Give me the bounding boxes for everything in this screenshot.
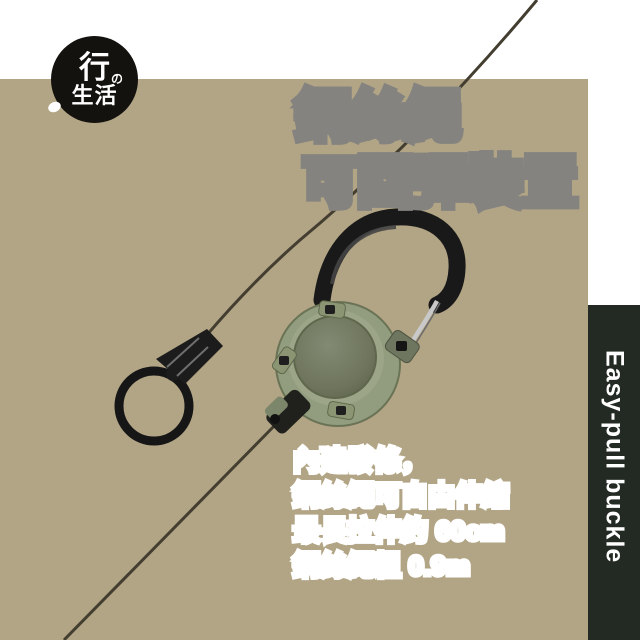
headline-line1: 鋼絲繩	[296, 84, 578, 150]
brand-logo: 行 の 生活	[51, 36, 138, 123]
keyring-icon	[119, 329, 223, 441]
spec-line: 內建發條，	[293, 444, 509, 479]
spec-line: 最長拉伸約 60cm	[293, 514, 509, 549]
spec-text-block: 內建發條， 鋼絲繩可自由伸縮 最長拉伸約 60cm 鋼絲繩粗 0.9m	[293, 444, 509, 584]
brand-char-top: 行 の	[79, 52, 110, 83]
spec-line: 鋼絲繩可自由伸縮	[293, 479, 509, 514]
side-banner: Easy-pull buckle	[588, 305, 640, 640]
product-ad-image: 行 の 生活 鋼絲繩 可回彈裝置 內建發條， 鋼絲繩可自由伸縮 最長拉伸約 60…	[0, 0, 640, 640]
headline: 鋼絲繩 可回彈裝置	[296, 84, 578, 216]
brand-mark: の	[111, 73, 123, 85]
spec-line: 鋼絲繩粗 0.9m	[293, 549, 509, 584]
brand-chars-bottom: 生活	[71, 85, 117, 107]
side-banner-text: Easy-pull buckle	[600, 350, 629, 640]
headline-line2: 可回彈裝置	[303, 150, 578, 216]
